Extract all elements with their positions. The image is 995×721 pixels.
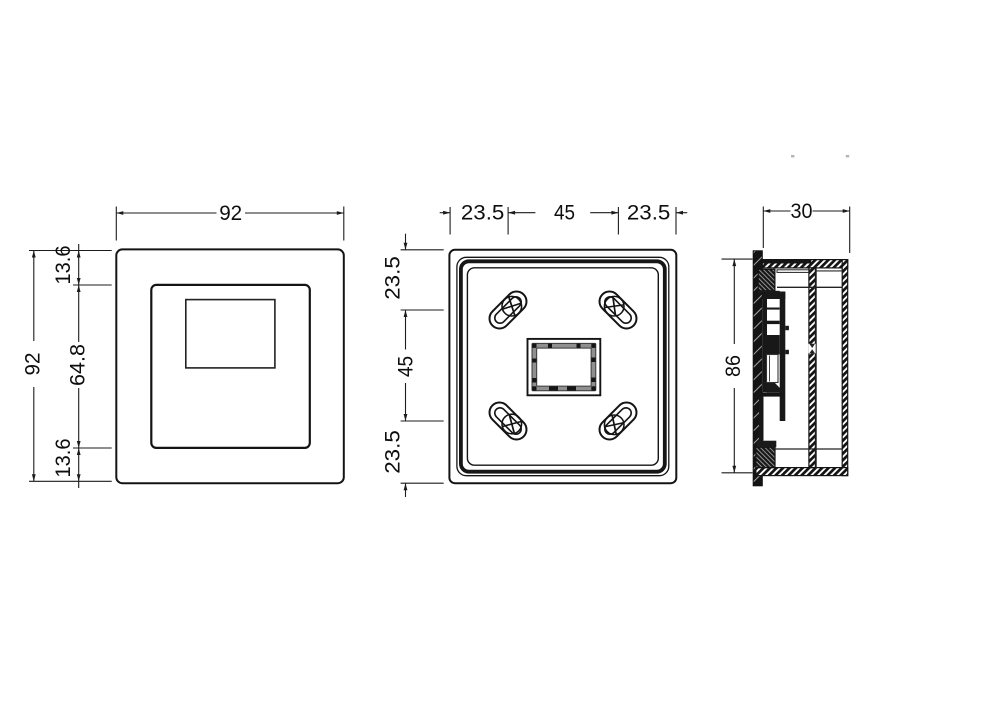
svg-text:23.5: 23.5 — [382, 430, 405, 474]
svg-text:92: 92 — [22, 353, 45, 376]
svg-text:86: 86 — [722, 355, 745, 377]
svg-text:23.5: 23.5 — [627, 202, 671, 225]
svg-text:23.5: 23.5 — [461, 202, 505, 225]
svg-text:92: 92 — [219, 202, 242, 225]
svg-text:23.5: 23.5 — [382, 256, 405, 300]
svg-text:13.6: 13.6 — [52, 439, 75, 478]
svg-text:45: 45 — [395, 356, 418, 377]
svg-text:45: 45 — [554, 202, 575, 225]
svg-text:64.8: 64.8 — [67, 344, 90, 386]
svg-text:13.6: 13.6 — [52, 246, 75, 285]
svg-text:30: 30 — [791, 200, 813, 223]
